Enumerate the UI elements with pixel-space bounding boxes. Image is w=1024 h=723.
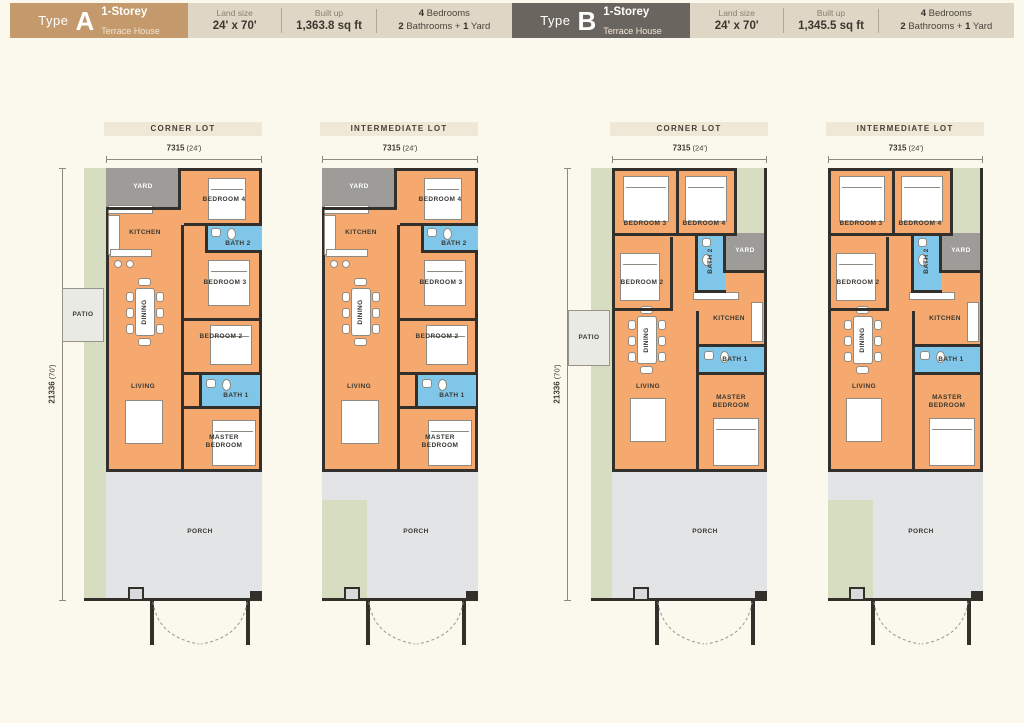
wall (184, 406, 262, 409)
built-up-value: 1,363.8 sq ft (282, 19, 375, 34)
chair (856, 366, 869, 374)
room-label-master: MASTER BEDROOM (923, 394, 971, 410)
dim-tick (59, 600, 66, 601)
width-dim-mm: 7315 (673, 144, 691, 153)
wall (205, 225, 208, 253)
sink (920, 351, 930, 360)
sink (704, 351, 714, 360)
depth-dimension: 21336 (70') (553, 364, 562, 403)
dim-tick (59, 168, 66, 169)
wall (676, 168, 679, 235)
bathrooms-count: 2 (398, 21, 403, 32)
dim-tick (564, 600, 571, 601)
wall (950, 168, 953, 236)
wall (695, 290, 726, 293)
type-letter: A (75, 8, 94, 34)
room-label-bedroom4: BEDROOM 4 (419, 196, 462, 204)
land-size-value: 24' x 70' (188, 19, 281, 34)
wall (915, 372, 983, 375)
gate-pillar (971, 591, 983, 601)
plus-sign: + (957, 21, 963, 32)
chair (354, 338, 367, 346)
wall (181, 225, 184, 472)
width-dimension-line (828, 159, 983, 160)
chair (126, 324, 134, 334)
dim-tick (982, 156, 983, 163)
sink (422, 379, 432, 388)
room-label-dining: DINING (141, 299, 149, 324)
chair (156, 308, 164, 318)
bedrooms-line: 4 Bedrooms (377, 8, 512, 20)
room-label-bedroom4: BEDROOM 4 (683, 220, 726, 228)
room-label-kitchen: KITCHEN (129, 229, 161, 237)
chair (640, 366, 653, 374)
width-dim-mm: 7315 (383, 144, 401, 153)
room-label-bedroom2: BEDROOM 2 (621, 279, 664, 287)
toilet (443, 228, 452, 240)
gate-swing-arcs (657, 601, 753, 646)
built-up-value: 1,345.5 sq ft (784, 19, 877, 34)
wall (696, 311, 699, 472)
wall (699, 372, 767, 375)
gate-swing-arcs (368, 601, 464, 646)
room-label-bedroom4: BEDROOM 4 (203, 196, 246, 204)
chair (628, 336, 636, 346)
chair (874, 320, 882, 330)
room-label-master: MASTER BEDROOM (200, 434, 248, 450)
width-dimension: 7315 (24') (383, 144, 418, 153)
room-label-bath2: BATH 2 (923, 248, 931, 273)
yard-word: Yard (471, 21, 490, 32)
yard-count: 1 (965, 21, 970, 32)
chair (138, 338, 151, 346)
land-size-col: Land size 24' x 70' (188, 8, 281, 34)
room-label-dining: DINING (643, 327, 651, 352)
chair (844, 336, 852, 346)
spec-panel-a: Land size 24' x 70' Built up 1,363.8 sq … (188, 3, 512, 38)
wall (723, 233, 726, 273)
dim-tick (612, 156, 613, 163)
bathrooms-line: 2 Bathrooms + 1 Yard (879, 21, 1014, 33)
plus-sign: + (455, 21, 461, 32)
chair (342, 324, 350, 334)
stool (126, 260, 134, 268)
wall (695, 233, 698, 293)
room-label-master: MASTER BEDROOM (707, 394, 755, 410)
header-type-b: Type B 1-Storey Terrace House Land size … (512, 3, 1014, 38)
house-type-label: Terrace House (603, 26, 662, 36)
room-label-porch: PORCH (908, 528, 933, 536)
land-size-col: Land size 24' x 70' (690, 8, 783, 34)
width-dimension-line (322, 159, 478, 160)
gate-swing-arcs (873, 601, 969, 646)
gate-swing-arcs (152, 601, 248, 646)
width-dim-ft: (24') (403, 144, 418, 153)
room-label-yard: YARD (133, 183, 152, 191)
built-up-label: Built up (784, 8, 877, 19)
storey-block: 1-Storey Terrace House (603, 2, 662, 39)
plan-type-b-corner-lot: CORNER LOT 7315 (24') 21336 (70') (545, 120, 777, 680)
floor-plan-sheet: Type A 1-Storey Terrace House Land size … (0, 0, 1024, 723)
room-label-bedroom2: BEDROOM 2 (200, 333, 243, 341)
room-label-dining: DINING (859, 327, 867, 352)
room-label-bedroom4: BEDROOM 4 (899, 220, 942, 228)
wall (734, 168, 737, 236)
stool (330, 260, 338, 268)
gate-pillar (250, 591, 262, 601)
width-dim-ft: (24') (909, 144, 924, 153)
bathrooms-word: Bathrooms (908, 21, 954, 32)
room-label-porch: PORCH (692, 528, 717, 536)
bed (713, 418, 759, 466)
width-dim-ft: (24') (693, 144, 708, 153)
depth-dim-ft: (70') (48, 364, 57, 379)
side-gate-step (849, 587, 865, 601)
type-b-badge: Type B 1-Storey Terrace House (512, 3, 690, 38)
bed (620, 253, 660, 301)
room-label-living: LIVING (347, 383, 371, 391)
kitchen-island (110, 249, 152, 257)
sink (206, 379, 216, 388)
depth-dim-mm: 21336 (553, 381, 562, 403)
wall (400, 372, 478, 375)
wall (184, 372, 262, 375)
bedrooms-word: Bedrooms (427, 8, 470, 19)
bed (836, 253, 876, 301)
width-dim-ft: (24') (187, 144, 202, 153)
type-word: Type (38, 13, 68, 28)
dim-tick (106, 156, 107, 163)
type-word: Type (540, 13, 570, 28)
width-dim-mm: 7315 (167, 144, 185, 153)
wall (184, 318, 262, 321)
wall (828, 233, 953, 236)
room-label-yard: YARD (349, 183, 368, 191)
sofa (630, 398, 666, 442)
wall (106, 207, 181, 210)
land-size-value: 24' x 70' (690, 19, 783, 34)
spec-panel-b: Land size 24' x 70' Built up 1,345.5 sq … (690, 3, 1014, 38)
bed (623, 176, 669, 222)
gate-pillar (755, 591, 767, 601)
yard-open-area (737, 168, 764, 233)
dim-tick (322, 156, 323, 163)
rooms-col: 4 Bedrooms 2 Bathrooms + 1 Yard (376, 9, 512, 33)
dim-tick (828, 156, 829, 163)
wall (911, 290, 942, 293)
room-label-bath1: BATH 1 (439, 392, 464, 400)
toilet (438, 379, 447, 391)
header-type-a: Type A 1-Storey Terrace House Land size … (10, 3, 512, 38)
wall (400, 223, 478, 226)
room-label-porch: PORCH (187, 528, 212, 536)
bathrooms-line: 2 Bathrooms + 1 Yard (377, 21, 512, 33)
wall (400, 318, 478, 321)
side-gate-step (128, 587, 144, 601)
yard-open-area (953, 168, 980, 233)
chair (126, 292, 134, 302)
chair (874, 336, 882, 346)
depth-dimension: 21336 (70') (48, 364, 57, 403)
kitchen-counter (909, 292, 955, 300)
bedrooms-line: 4 Bedrooms (879, 8, 1014, 20)
width-dimension: 7315 (24') (673, 144, 708, 153)
room-label-porch: PORCH (403, 528, 428, 536)
wall (939, 233, 942, 273)
sofa (846, 398, 882, 442)
land-size-label: Land size (188, 8, 281, 19)
toilet (222, 379, 231, 391)
lot-type-label: INTERMEDIATE LOT (320, 122, 478, 136)
land-size-label: Land size (690, 8, 783, 19)
chair (658, 320, 666, 330)
room-label-bedroom2: BEDROOM 2 (416, 333, 459, 341)
side-gate-step (344, 587, 360, 601)
yard-count: 1 (463, 21, 468, 32)
chair (628, 352, 636, 362)
room-label-bath2: BATH 2 (441, 240, 466, 248)
room-label-bath2: BATH 2 (225, 240, 250, 248)
type-letter: B (577, 8, 596, 34)
sink (211, 228, 221, 237)
wall (942, 270, 983, 273)
room-label-bath2: BATH 2 (707, 248, 715, 273)
wall (612, 308, 673, 311)
wall (915, 344, 983, 347)
stool (342, 260, 350, 268)
bed (426, 325, 468, 365)
bed (929, 418, 975, 466)
room-label-bath1: BATH 1 (223, 392, 248, 400)
wall (178, 168, 181, 210)
wall (726, 270, 767, 273)
room-label-living: LIVING (131, 383, 155, 391)
wall (397, 225, 400, 472)
storey-label: 1-Storey (101, 6, 147, 18)
yard-word: Yard (973, 21, 992, 32)
lot-type-label: CORNER LOT (610, 122, 768, 136)
lot-type-label: CORNER LOT (104, 122, 262, 136)
rooms-col: 4 Bedrooms 2 Bathrooms + 1 Yard (878, 9, 1014, 33)
dim-tick (477, 156, 478, 163)
room-label-kitchen: KITCHEN (345, 229, 377, 237)
depth-dimension-line (567, 168, 568, 601)
wall (199, 375, 202, 409)
wall (912, 311, 915, 472)
chair (874, 352, 882, 362)
sofa (341, 400, 379, 444)
room-label-bath1: BATH 1 (722, 356, 747, 364)
kitchen-island (326, 249, 368, 257)
width-dimension: 7315 (24') (167, 144, 202, 153)
depth-dim-mm: 21336 (48, 381, 57, 403)
chair (658, 352, 666, 362)
bathrooms-count: 2 (900, 21, 905, 32)
width-dim-mm: 7315 (889, 144, 907, 153)
room-label-living: LIVING (852, 383, 876, 391)
storey-block: 1-Storey Terrace House (101, 2, 160, 39)
wall (828, 308, 889, 311)
lot-type-label: INTERMEDIATE LOT (826, 122, 984, 136)
bedrooms-count: 4 (419, 8, 424, 19)
bed (685, 176, 727, 222)
room-label-master: MASTER BEDROOM (416, 434, 464, 450)
room-label-bedroom3: BEDROOM 3 (840, 220, 883, 228)
toilet (227, 228, 236, 240)
kitchen-counter (751, 302, 763, 342)
wall (612, 233, 737, 236)
chair (354, 278, 367, 286)
gate-pillar (466, 591, 478, 601)
plan-type-b-intermediate-lot: INTERMEDIATE LOT 7315 (24') (761, 120, 993, 680)
wall (322, 207, 397, 210)
bed (901, 176, 943, 222)
width-dimension: 7315 (24') (889, 144, 924, 153)
room-label-kitchen: KITCHEN (929, 315, 961, 323)
stool (114, 260, 122, 268)
kitchen-counter (967, 302, 979, 342)
built-up-label: Built up (282, 8, 375, 19)
wall (699, 344, 767, 347)
built-up-col: Built up 1,363.8 sq ft (281, 8, 375, 34)
room-label-dining: DINING (357, 299, 365, 324)
porch-area (106, 472, 262, 600)
chair (342, 292, 350, 302)
room-label-yard: YARD (735, 247, 754, 255)
side-gate-step (633, 587, 649, 601)
chair (372, 292, 380, 302)
room-label-bedroom2: BEDROOM 2 (837, 279, 880, 287)
room-label-bedroom3: BEDROOM 3 (624, 220, 667, 228)
plan-type-a-intermediate-lot: INTERMEDIATE LOT 7315 (24') (256, 120, 488, 680)
sink (702, 238, 711, 247)
wall (184, 223, 262, 226)
width-dimension-line (106, 159, 262, 160)
chair (138, 278, 151, 286)
bed (210, 325, 252, 365)
plan-type-a-corner-lot: CORNER LOT 7315 (24') 21336 (70') (40, 120, 272, 680)
bed (839, 176, 885, 222)
wall (911, 233, 914, 293)
kitchen-counter (693, 292, 739, 300)
room-label-bath1: BATH 1 (938, 356, 963, 364)
sofa (125, 400, 163, 444)
bathrooms-word: Bathrooms (406, 21, 452, 32)
wall (205, 250, 262, 253)
sink (427, 228, 437, 237)
sink (918, 238, 927, 247)
chair (126, 308, 134, 318)
wall (400, 406, 478, 409)
room-label-patio: PATIO (579, 334, 600, 342)
room-label-kitchen: KITCHEN (713, 315, 745, 323)
chair (844, 352, 852, 362)
room-label-yard: YARD (951, 247, 970, 255)
room-label-bedroom3: BEDROOM 3 (204, 279, 247, 287)
chair (628, 320, 636, 330)
porch-area (612, 472, 767, 600)
chair (372, 308, 380, 318)
room-label-patio: PATIO (73, 311, 94, 319)
chair (342, 308, 350, 318)
chair (658, 336, 666, 346)
front-garden (828, 500, 873, 601)
wall (421, 225, 424, 253)
chair (156, 292, 164, 302)
bedrooms-word: Bedrooms (929, 8, 972, 19)
wall (415, 375, 418, 409)
wall (892, 168, 895, 235)
chair (844, 320, 852, 330)
depth-dimension-line (62, 168, 63, 601)
wall (886, 237, 889, 311)
storey-label: 1-Storey (603, 6, 649, 18)
wall (670, 237, 673, 311)
width-dimension-line (612, 159, 767, 160)
built-up-col: Built up 1,345.5 sq ft (783, 8, 877, 34)
front-garden (322, 500, 367, 601)
wall (421, 250, 478, 253)
chair (372, 324, 380, 334)
depth-dim-ft: (70') (553, 364, 562, 379)
dim-tick (564, 168, 571, 169)
wall (394, 168, 397, 210)
room-label-living: LIVING (636, 383, 660, 391)
house-type-label: Terrace House (101, 26, 160, 36)
bedrooms-count: 4 (921, 8, 926, 19)
room-label-bedroom3: BEDROOM 3 (420, 279, 463, 287)
chair (156, 324, 164, 334)
type-a-badge: Type A 1-Storey Terrace House (10, 3, 188, 38)
